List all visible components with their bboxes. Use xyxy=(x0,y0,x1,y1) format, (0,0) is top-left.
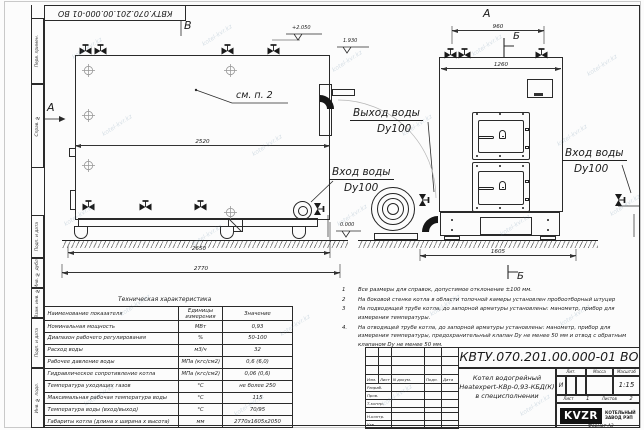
elev-1930-text: 1.930 xyxy=(343,39,357,44)
upper-door-handle-bar xyxy=(478,136,494,139)
ground-hatch-front xyxy=(358,240,598,248)
chimney-outlet-stub xyxy=(332,89,355,96)
spec-cell: 50-100 xyxy=(223,333,293,345)
valve-glyph xyxy=(458,47,471,59)
inlet-mid-label-line2: Dy100 xyxy=(344,183,378,194)
tb-hdr-izm: Изм. xyxy=(366,375,379,384)
frame-cell-inv-podl: Инв. № подл. xyxy=(31,368,44,428)
scale-value: 1:15 xyxy=(619,382,635,389)
crosshair-glyph xyxy=(82,109,95,122)
door-latch xyxy=(525,128,529,131)
valve-glyph xyxy=(139,199,152,211)
valve-icon xyxy=(535,44,548,56)
lower-door-handle-bar xyxy=(478,187,494,190)
door-latch xyxy=(525,146,529,149)
crosshair-glyph xyxy=(224,206,237,219)
note-item: 3На подводящей трубе котла, до запорной … xyxy=(342,305,634,322)
mass-header: Масса xyxy=(593,370,606,374)
doc-number-cell: КВТУ.070.201.00.000-01 ВО xyxy=(458,347,640,368)
spec-cell: 70/95 xyxy=(223,404,293,416)
lit-value-cell: И xyxy=(556,376,566,395)
spec-row: Температура воды (вход/выход)°С70/95 xyxy=(45,404,293,416)
door-latch xyxy=(525,180,529,183)
format-label: Формат А3 xyxy=(588,425,614,430)
valve-glyph xyxy=(314,203,326,216)
outlet-label-line1: Выход воды xyxy=(350,108,423,121)
dim-1605: 1605 xyxy=(420,255,576,256)
scale-header-cell: Масштаб xyxy=(613,368,640,376)
crosshair-icon xyxy=(82,107,95,126)
spec-cell: МПа (кгс/см2) xyxy=(179,368,223,380)
top-stamp-box: КВТУ.070.201.00.000-01 ВО xyxy=(44,5,186,21)
side-left-stub xyxy=(70,190,76,210)
crosshair-glyph xyxy=(224,64,237,77)
frame-cell-vzam-inv: Взам. инв. № xyxy=(31,288,44,318)
spec-row: Температура уходящих газов°Сне более 250 xyxy=(45,380,293,392)
frame-cell-podp-data-2: Подп. и дата xyxy=(31,318,44,368)
crosshair-glyph xyxy=(82,64,95,77)
spec-cell: Диапазон рабочего регулирования xyxy=(45,333,179,345)
product-name-cell: Котел водогрейный Heatexpert-КВр-0,93-КБ… xyxy=(458,368,556,428)
tb-row-razrab: Разраб. xyxy=(366,384,392,392)
upper-door-knob xyxy=(499,130,506,139)
spec-cell: 0,93 xyxy=(223,321,293,333)
valve-glyph xyxy=(267,43,280,55)
spec-row: Гидравлическое сопротивление котлаМПа (к… xyxy=(45,368,293,380)
spec-cell: 115 xyxy=(223,392,293,404)
frame-cell-label: Взам. инв. № xyxy=(35,288,40,318)
valve-glyph xyxy=(615,194,627,207)
company-line2: ЗАВОД РЭП xyxy=(605,416,636,420)
lit-value: И xyxy=(559,383,564,389)
door-latch xyxy=(525,198,529,201)
tb-hdr-list: Лист xyxy=(379,375,392,384)
note-text: На подводящей трубе котла, до запорной а… xyxy=(358,305,634,322)
product-name-line3: в специсполнении xyxy=(475,393,538,400)
side-left-stub xyxy=(69,148,76,157)
note-item: 1Все размеры для справок, допустимое отк… xyxy=(342,286,634,295)
valve-glyph xyxy=(535,47,548,59)
valve-icon xyxy=(82,196,95,208)
scale-header: Масштаб xyxy=(617,370,636,374)
valve-icon xyxy=(94,40,107,52)
frame-cell-label: Подп. и дата xyxy=(35,328,40,357)
spec-cell: °С xyxy=(179,404,223,416)
dim-2650-text: 2650 xyxy=(192,246,206,252)
valve-glyph xyxy=(94,43,107,55)
note-item: 2На боковой стенке котла в области топоч… xyxy=(342,296,634,305)
spec-cell: Гидравлическое сопротивление котла xyxy=(45,368,179,380)
frame-cell-inv-dubl: Инв. № дубл. xyxy=(31,258,44,288)
spec-table: Наименование показателя Единицы измерени… xyxy=(44,306,293,428)
frame-cell-label: Инв. № дубл. xyxy=(35,258,40,288)
spec-cell: % xyxy=(179,333,223,345)
valve-icon xyxy=(267,40,280,52)
mass-value-cell xyxy=(586,376,613,395)
spec-cell: МПа (кгс/см2) xyxy=(179,356,223,368)
view-label-a-front: А xyxy=(483,8,491,19)
dim-2520-text: 2520 xyxy=(195,139,209,145)
spec-row: Номинальная мощностьМВт0,93 xyxy=(45,321,293,333)
spec-cell: Рабочее давление воды xyxy=(45,356,179,368)
note-text: На боковой стенке котла в области топочн… xyxy=(358,296,615,305)
spec-cell: Расход воды xyxy=(45,344,179,356)
sheet-label: Лист xyxy=(563,397,573,401)
title-block-left-grid: Изм. Лист N докум. Подп. Дата Разраб. Пр… xyxy=(365,347,459,429)
dim-2770: 2770 xyxy=(62,272,340,273)
valve-icon xyxy=(317,203,329,216)
front-base-opening xyxy=(480,217,532,235)
spec-header-value: Значение xyxy=(223,307,293,321)
spec-cell: °С xyxy=(179,380,223,392)
valve-icon xyxy=(422,194,434,207)
frame-cell-label: Подп. и дата xyxy=(35,222,40,251)
lit-cell-2 xyxy=(566,376,576,395)
inlet-right-label-line2: Dy100 xyxy=(574,164,608,175)
spec-cell: мм xyxy=(179,416,223,428)
lit-header-cell: Лит. xyxy=(556,368,586,376)
frame-cell-podp-data-1: Подп. и дата xyxy=(31,215,44,258)
dim-960: 960 xyxy=(452,30,544,31)
valve-icon xyxy=(221,40,234,52)
spec-cell: °С xyxy=(179,392,223,404)
spec-cell: не более 250 xyxy=(223,380,293,392)
frame-cell-sprav-no: Справ. № xyxy=(31,84,44,168)
spec-header-name: Наименование показателя xyxy=(45,307,179,321)
tb-hdr-podp: Подп. xyxy=(425,375,442,384)
crosshair-icon xyxy=(224,204,237,223)
spec-row: Максимальная рабочая температура воды°С1… xyxy=(45,392,293,404)
spec-row: Габариты котла (длина х ширина х высота)… xyxy=(45,416,293,428)
spec-header-units: Единицы измерения xyxy=(179,307,223,321)
tb-row-nkontr: Н.контр. xyxy=(366,413,392,421)
section-b-bottom-label: Б xyxy=(517,272,524,282)
valve-glyph xyxy=(79,43,92,55)
tb-hdr-data: Дата xyxy=(442,375,459,384)
elev-2050-text: +2.050 xyxy=(292,26,311,31)
dim-2770-text: 2770 xyxy=(194,266,208,272)
sheet: Перв. примен. Справ. № Подп. и дата Инв.… xyxy=(0,0,644,430)
tb-header-row: Изм. Лист N докум. Подп. Дата xyxy=(366,375,459,384)
sheets-value: 2 xyxy=(629,397,632,402)
tb-row-utv: Утв. xyxy=(366,421,392,429)
crosshair-icon xyxy=(224,62,237,81)
tb-row-prov: Пров. xyxy=(366,392,392,400)
spec-cell: МВт xyxy=(179,321,223,333)
frame-cell-label: Перв. примен. xyxy=(35,35,40,67)
inlet-mid-label-line1: Вход воды xyxy=(329,167,394,180)
sheet-row: Лист 1 Листов 2 xyxy=(556,395,640,403)
sheets-label: Листов xyxy=(602,397,617,401)
elev-0000-text: 0.000 xyxy=(340,223,354,228)
fan-circle-4 xyxy=(387,203,399,215)
dim-2650: 2650 xyxy=(68,252,330,253)
valve-glyph xyxy=(82,199,95,211)
mass-header-cell: Масса xyxy=(586,368,613,376)
spec-cell: 0,06 (0,6) xyxy=(223,368,293,380)
section-label-a-side: А xyxy=(47,102,55,113)
note-number: 1 xyxy=(342,286,358,295)
spec-table-title: Техническая характеристика xyxy=(118,297,211,303)
valve-glyph xyxy=(419,194,431,207)
crosshair-icon xyxy=(82,157,95,176)
valve-icon xyxy=(444,44,457,56)
product-name-line2: Heatexpert-КВр-0,93-КБД(К) xyxy=(459,384,554,391)
dim-960-text: 960 xyxy=(493,24,504,30)
lower-door-knob xyxy=(499,181,506,190)
frame-cell-label: Справ. № xyxy=(35,115,40,136)
sheet-value: 1 xyxy=(586,397,589,402)
note-number: 2 xyxy=(342,296,358,305)
dim-1260-text: 1260 xyxy=(494,62,508,68)
valve-icon xyxy=(618,194,630,207)
dim-2520: 2520 xyxy=(75,145,330,146)
spec-cell: Максимальная рабочая температура воды xyxy=(45,392,179,404)
top-stamp-text: КВТУ.070.201.00.000-01 ВО xyxy=(58,9,172,17)
frame-cell-perv-primen: Перв. примен. xyxy=(31,18,44,84)
spec-row: Расход водым3/ч32 xyxy=(45,344,293,356)
note-text: Все размеры для справок, допустимое откл… xyxy=(358,286,532,295)
scale-value-cell: 1:15 xyxy=(613,376,640,395)
spec-row: Диапазон рабочего регулирования%50-100 xyxy=(45,333,293,345)
notes-list: 1Все размеры для справок, допустимое отк… xyxy=(342,286,634,350)
valve-glyph xyxy=(194,199,207,211)
doc-number: КВТУ.070.201.00.000-01 ВО xyxy=(460,351,639,364)
crosshair-icon xyxy=(82,62,95,81)
dim-1605-text: 1605 xyxy=(491,249,505,255)
valve-icon xyxy=(458,44,471,56)
valve-icon xyxy=(194,196,207,208)
spec-cell: Температура уходящих газов xyxy=(45,380,179,392)
inlet-right-label-line1: Вход воды xyxy=(562,148,627,161)
view-label-v: В xyxy=(184,20,192,31)
side-base-rail xyxy=(78,218,318,227)
note-text: На отводящей трубе котла, до запорной ар… xyxy=(358,324,634,350)
control-panel-slot xyxy=(534,93,543,96)
see-note-label: см. п. 2 xyxy=(236,91,273,101)
tb-hdr-docnum: N докум. xyxy=(392,375,425,384)
note-item: 4.На отводящей трубе котла, до запорной … xyxy=(342,324,634,350)
section-b-top-label: Б xyxy=(513,32,520,42)
outlet-label-line2: Dy100 xyxy=(377,124,411,135)
kvzr-logo: KVZR xyxy=(560,408,602,424)
spec-cell: 32 xyxy=(223,344,293,356)
lit-cell-3 xyxy=(576,376,586,395)
spec-cell: Температура воды (вход/выход) xyxy=(45,404,179,416)
fan-base xyxy=(374,233,418,240)
inlet-flange-inner xyxy=(298,206,308,216)
lit-header: Лит. xyxy=(566,370,575,374)
spec-cell: м3/ч xyxy=(179,344,223,356)
frame-cell-label: Инв. № подл. xyxy=(35,383,40,413)
spec-header-row: Наименование показателя Единицы измерени… xyxy=(45,307,293,321)
spec-cell: 2770х1605х2050 xyxy=(223,416,293,428)
spec-cell: Габариты котла (длина х ширина х высота) xyxy=(45,416,179,428)
chimney-pipe xyxy=(319,84,332,136)
valve-icon xyxy=(139,196,152,208)
product-name-line1: Котел водогрейный xyxy=(473,375,541,382)
spec-cell: Номинальная мощность xyxy=(45,321,179,333)
note-number: 3 xyxy=(342,305,358,322)
tb-row-tkontr: Т.контр. xyxy=(366,400,392,408)
valve-glyph xyxy=(221,43,234,55)
spec-cell: 0,6 (6,0) xyxy=(223,356,293,368)
note-number: 4. xyxy=(342,324,358,350)
valve-glyph xyxy=(444,47,457,59)
crosshair-glyph xyxy=(82,159,95,172)
dim-1260: 1260 xyxy=(441,68,561,69)
spec-row: Рабочее давление водыМПа (кгс/см2)0,6 (6… xyxy=(45,356,293,368)
spec-table-body: Номинальная мощностьМВт0,93Диапазон рабо… xyxy=(45,321,293,428)
valve-icon xyxy=(79,40,92,52)
